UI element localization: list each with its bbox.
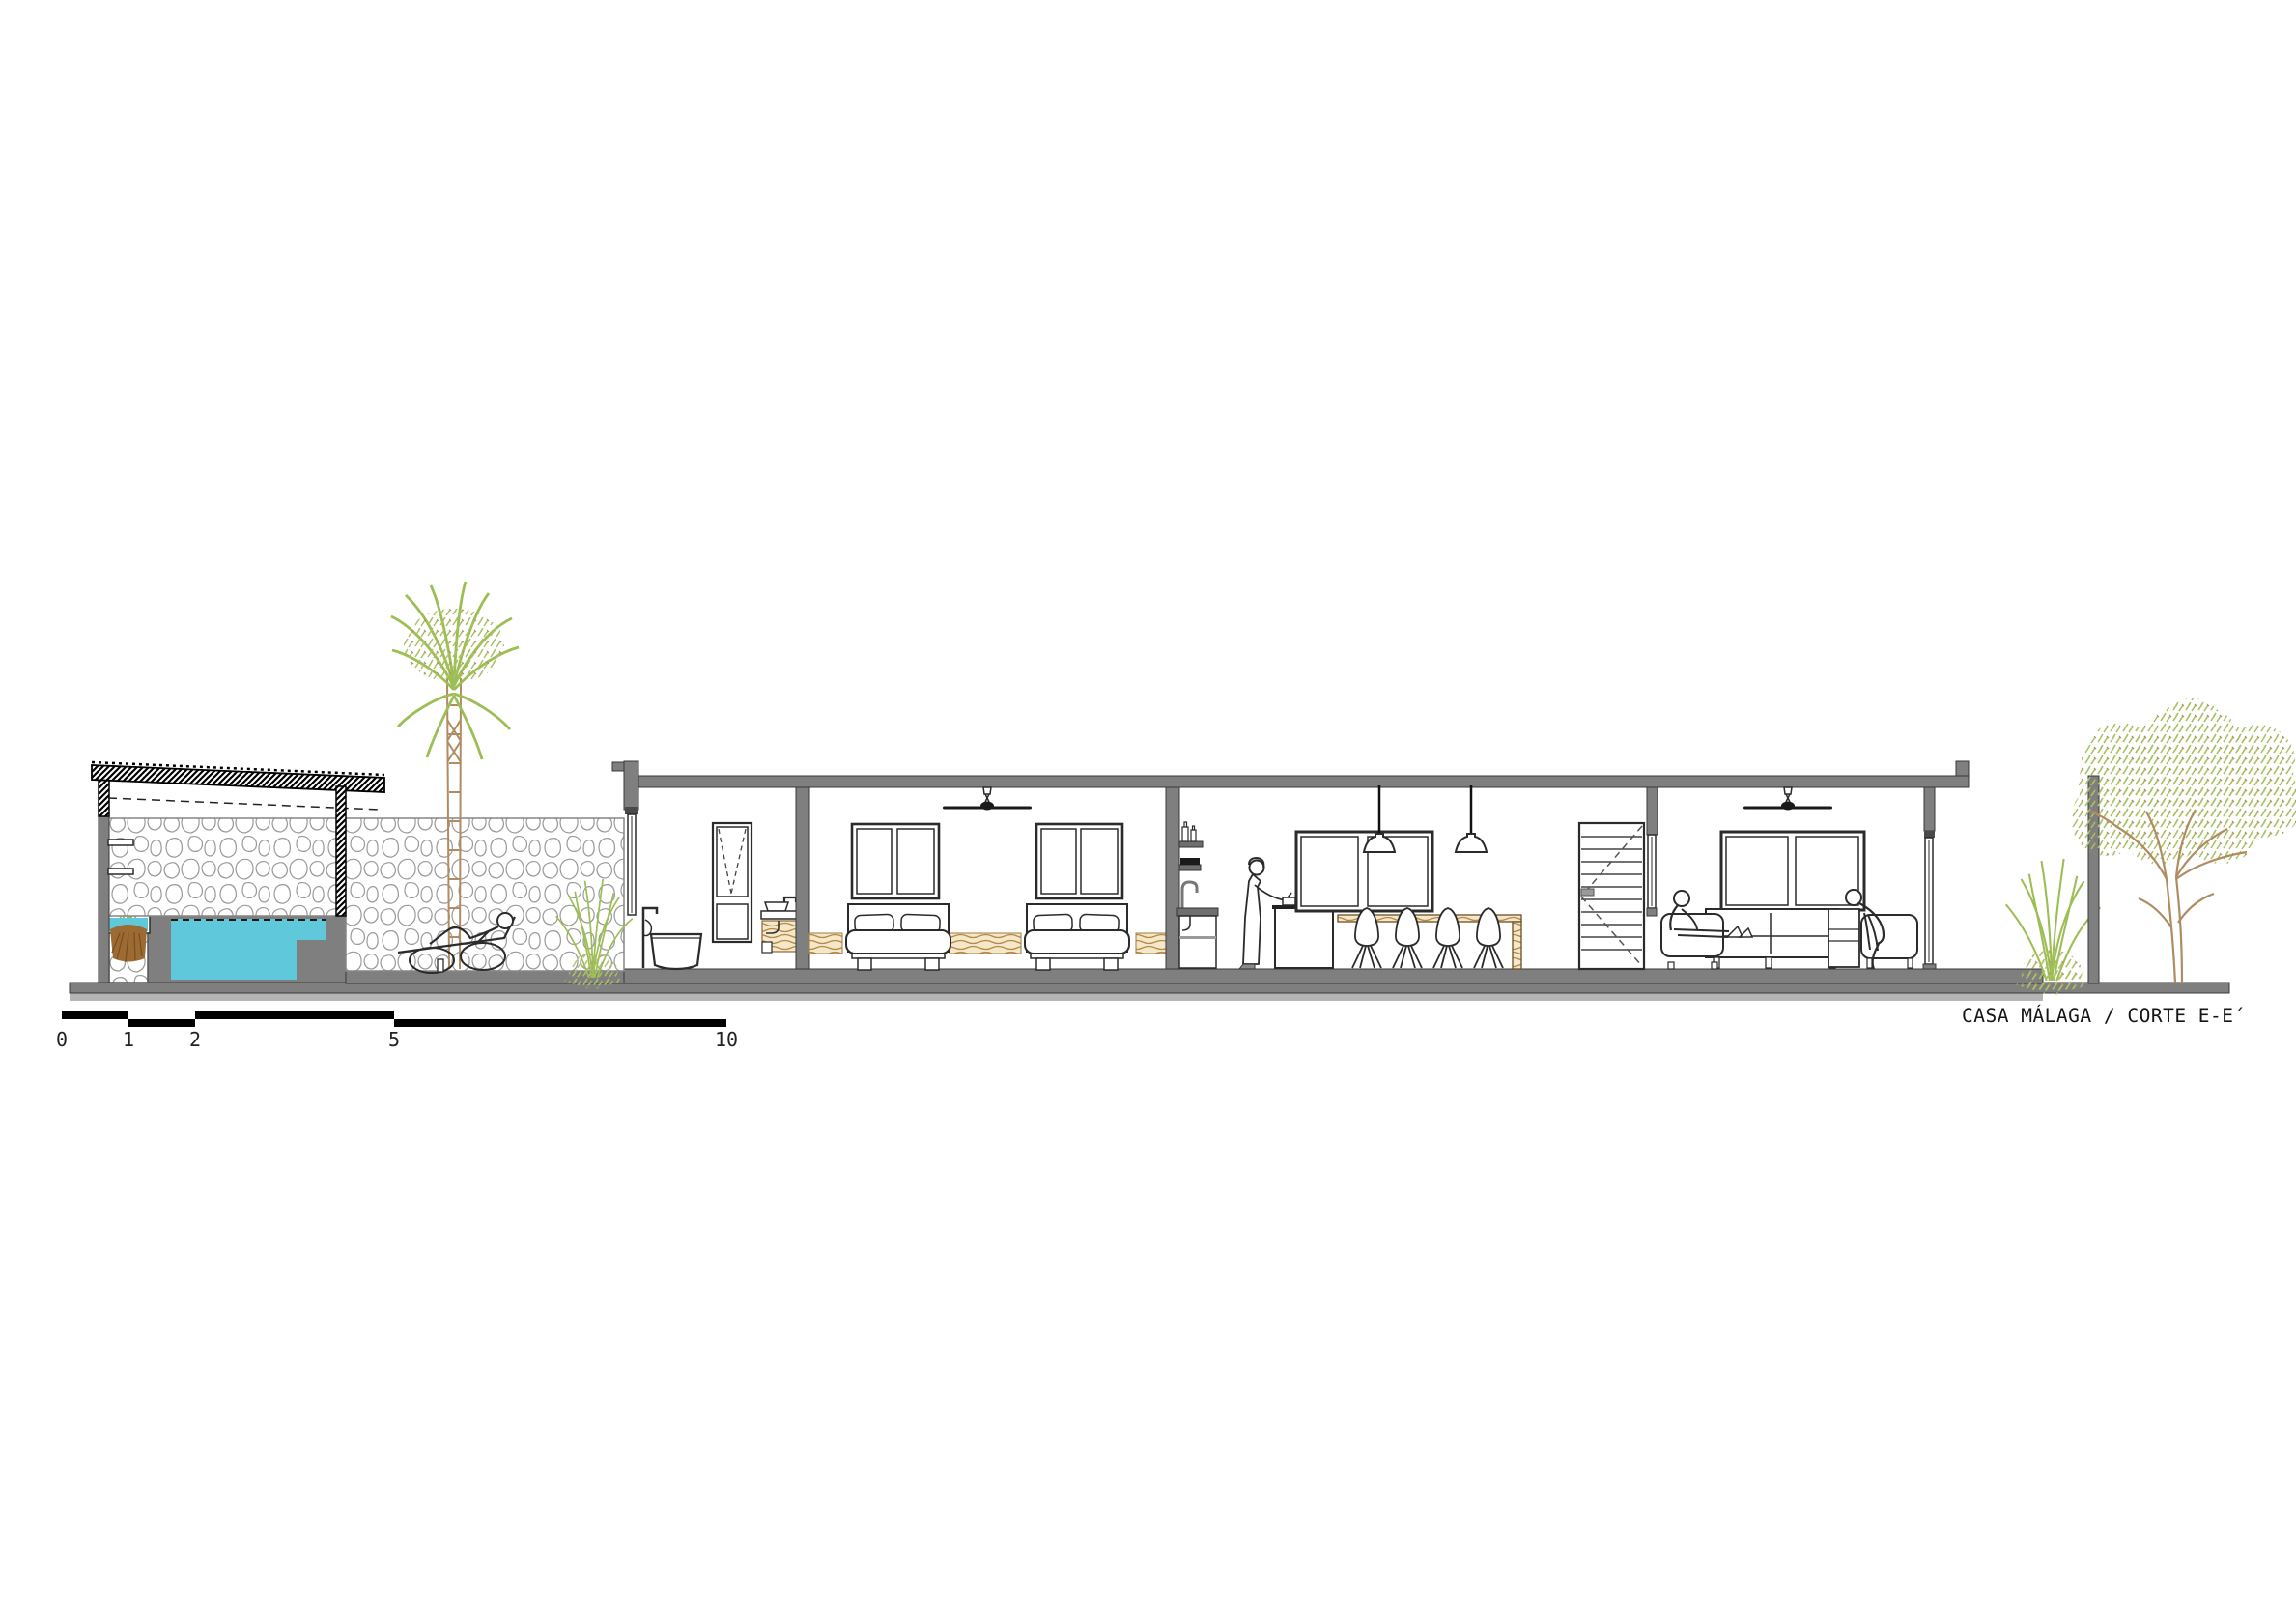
- scale-bar-segment: [195, 1011, 394, 1019]
- wall-bedroom-kitchen: [1166, 787, 1179, 969]
- cooking-pot: [1283, 897, 1295, 905]
- roof-edge-right: [1956, 761, 1969, 776]
- scale-label-5: 5: [388, 1028, 400, 1051]
- pendant-light-1: [1364, 785, 1395, 852]
- side-table: [1828, 909, 1859, 967]
- bathtub: [651, 934, 701, 969]
- column-right: [1923, 787, 1936, 969]
- bathroom-sink: [761, 897, 799, 953]
- ceiling-fan-living: [1743, 787, 1832, 811]
- scale-label-1: 1: [123, 1028, 134, 1051]
- books: [1180, 858, 1200, 865]
- drawing-title: CASA MÁLAGA / CORTE E-E´: [1962, 1005, 2246, 1027]
- bathroom-window: [713, 823, 751, 942]
- bedroom: [809, 787, 1166, 970]
- section-drawing: [0, 0, 2296, 1624]
- ground-slab: [70, 969, 2229, 1001]
- bed-2: [1025, 904, 1129, 970]
- ceiling-fan-bedroom: [943, 787, 1032, 811]
- swimming-pool: [148, 916, 346, 983]
- bed-1: [846, 904, 950, 970]
- kitchen-shelves: [1179, 822, 1203, 870]
- bathroom: [643, 823, 799, 969]
- wall-kitchen-living: [1647, 787, 1658, 916]
- scale-bar-segment: [394, 1019, 726, 1027]
- scale-label-10: 10: [715, 1028, 738, 1051]
- wall-shelf: [108, 869, 133, 874]
- poolside-bottle: [438, 959, 443, 972]
- kitchen: [1177, 785, 1644, 969]
- scale-label-0: 0: [56, 1028, 68, 1051]
- tree: [2071, 698, 2296, 983]
- kitchen-sink: [1177, 882, 1218, 968]
- bottles: [1182, 822, 1196, 841]
- living-window: [1721, 832, 1864, 910]
- pergola-post: [336, 786, 346, 916]
- louvered-door: [1579, 823, 1644, 969]
- door-handle: [1581, 889, 1594, 896]
- architectural-section-sheet: CASA MÁLAGA / CORTE E-E´ 0 1 2 5 10: [0, 0, 2296, 1624]
- pendant-light-2: [1456, 785, 1487, 852]
- wall-shelf: [108, 840, 133, 845]
- wall-bath-bedroom: [796, 787, 809, 969]
- bedroom-window-1: [852, 824, 939, 898]
- end-wall-left: [624, 761, 638, 810]
- scale-label-2: 2: [189, 1028, 201, 1051]
- living-room: [1661, 787, 1917, 969]
- kitchen-window: [1296, 832, 1432, 911]
- scale-bar-segment: [62, 1011, 128, 1019]
- bedroom-window-2: [1036, 824, 1122, 898]
- armchair-right: [1861, 915, 1917, 958]
- scale-bar-segment: [128, 1019, 195, 1027]
